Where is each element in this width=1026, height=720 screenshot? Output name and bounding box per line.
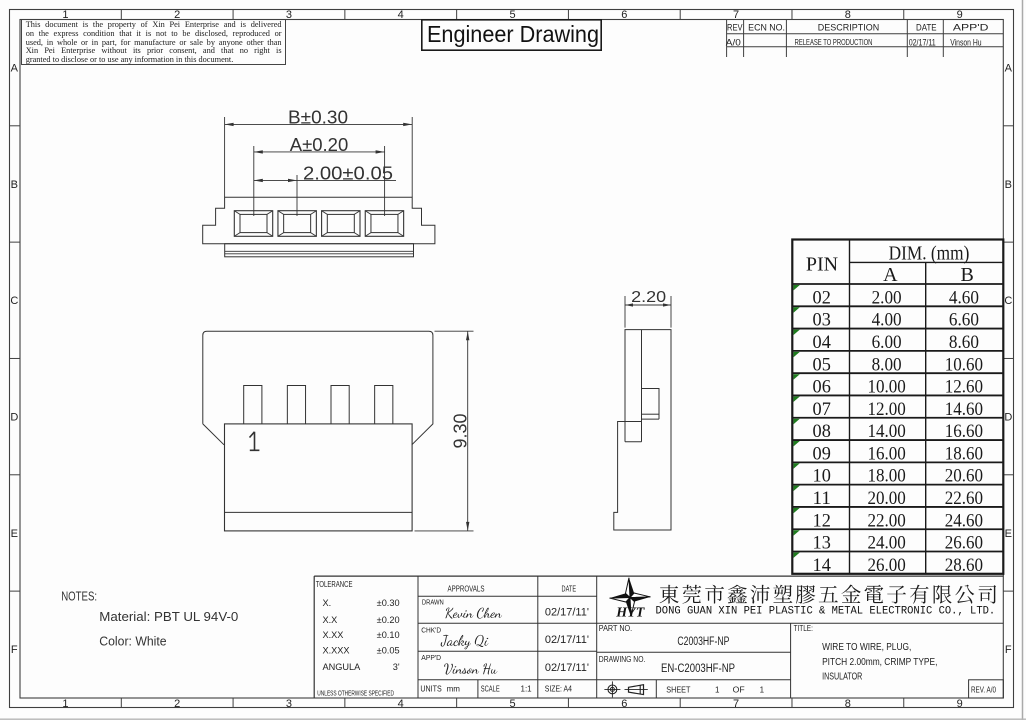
svg-text:Color: White: Color: White — [99, 634, 166, 649]
svg-text:28.60: 28.60 — [945, 555, 983, 576]
svg-text:03: 03 — [813, 310, 831, 331]
svg-text:NOTES:: NOTES: — [61, 590, 97, 604]
svg-text:9: 9 — [957, 9, 963, 21]
svg-text:14.60: 14.60 — [945, 399, 983, 420]
svg-text:C2003HF-NP: C2003HF-NP — [677, 636, 729, 648]
svg-text:1: 1 — [715, 685, 720, 694]
svg-text:INSULATOR: INSULATOR — [822, 671, 863, 682]
svg-text:18.00: 18.00 — [867, 466, 905, 487]
svg-text:1: 1 — [62, 9, 68, 21]
svg-text:SCALE: SCALE — [481, 684, 500, 693]
svg-text:13: 13 — [813, 533, 831, 554]
svg-text:B±0.30: B±0.30 — [288, 107, 348, 128]
svg-text:12: 12 — [813, 510, 831, 531]
svg-text:mm: mm — [447, 684, 461, 693]
svg-text:DIM. (mm): DIM. (mm) — [889, 244, 970, 265]
svg-text:F: F — [11, 644, 18, 656]
svg-text:10.00: 10.00 — [867, 377, 905, 398]
svg-text:24.60: 24.60 — [945, 510, 983, 531]
svg-text:4: 4 — [398, 698, 404, 710]
svg-text:±0.05: ±0.05 — [377, 646, 400, 656]
svg-text:1: 1 — [62, 698, 68, 710]
svg-text:1: 1 — [760, 685, 765, 694]
svg-text:±0.20: ±0.20 — [377, 615, 400, 625]
svg-text:C: C — [1004, 295, 1012, 307]
svg-text:6.00: 6.00 — [872, 332, 902, 353]
svg-text:2: 2 — [174, 9, 180, 21]
svg-text:3: 3 — [286, 698, 292, 710]
svg-text:20.00: 20.00 — [867, 488, 905, 509]
svg-text:8.00: 8.00 — [872, 354, 902, 375]
svg-text:12.60: 12.60 — [945, 377, 983, 398]
svg-text:26.00: 26.00 — [867, 555, 905, 576]
svg-text:X.X: X.X — [323, 615, 338, 625]
svg-text:C: C — [10, 295, 18, 307]
svg-text:1:1: 1:1 — [521, 684, 533, 693]
svg-text:24.00: 24.00 — [867, 533, 905, 554]
svg-text:10: 10 — [813, 466, 831, 487]
svg-text:±0.30: ±0.30 — [377, 598, 400, 608]
svg-text:PITCH 2.00mm, CRIMP TYPE,: PITCH 2.00mm, CRIMP TYPE, — [822, 657, 937, 668]
svg-text:DESCRIPTION: DESCRIPTION — [818, 23, 879, 33]
svg-text:TITLE:: TITLE: — [794, 624, 813, 633]
svg-text:10.60: 10.60 — [945, 354, 983, 375]
svg-text:X.XX: X.XX — [323, 630, 344, 640]
svg-text:2: 2 — [174, 698, 180, 710]
svg-text:26.60: 26.60 — [945, 533, 983, 554]
svg-text:PART NO.: PART NO. — [599, 624, 632, 633]
svg-text:REV: REV — [727, 23, 743, 33]
svg-text:DATE: DATE — [916, 23, 937, 33]
svg-text:EN-C2003HF-NP: EN-C2003HF-NP — [661, 663, 735, 675]
svg-text:2.20: 2.20 — [631, 289, 666, 306]
svg-text:X.: X. — [323, 598, 332, 608]
svg-text:UNITS: UNITS — [420, 684, 441, 693]
svg-text:18.60: 18.60 — [945, 443, 983, 464]
svg-text:3: 3 — [286, 9, 292, 21]
svg-text:E: E — [11, 528, 18, 540]
svg-text:PIN: PIN — [806, 254, 838, 276]
svg-text:2.00: 2.00 — [872, 287, 902, 308]
svg-text:3ʹ: 3ʹ — [393, 662, 400, 672]
svg-text:Engineer Drawing: Engineer Drawing — [427, 21, 599, 47]
svg-text:20.60: 20.60 — [945, 466, 983, 487]
svg-text:A: A — [1005, 63, 1013, 75]
svg-text:2.00±0.05: 2.00±0.05 — [303, 163, 393, 184]
svg-text:5: 5 — [509, 698, 515, 710]
svg-text:DRAWN: DRAWN — [422, 597, 444, 606]
svg-text:02/17/11: 02/17/11 — [909, 37, 936, 47]
svg-text:WIRE TO WIRE, PLUG,: WIRE TO WIRE, PLUG, — [822, 642, 911, 653]
svg-text:02/17/11': 02/17/11' — [545, 634, 589, 646]
svg-text:SHEET: SHEET — [666, 685, 690, 694]
svg-text:Material: PBT UL 94V-0: Material: PBT UL 94V-0 — [99, 609, 238, 624]
svg-text:02/17/11': 02/17/11' — [545, 607, 589, 619]
svg-text:A: A — [883, 264, 898, 286]
svg-text:APPROVALS: APPROVALS — [448, 585, 485, 594]
svg-text:B: B — [11, 179, 18, 191]
svg-text:11: 11 — [813, 488, 831, 509]
svg-text:02/17/11': 02/17/11' — [545, 662, 589, 674]
svg-text:12.00: 12.00 — [867, 399, 905, 420]
svg-text:05: 05 — [813, 354, 831, 375]
svg-text:Vinson Hu: Vinson Hu — [950, 37, 981, 47]
svg-text:02: 02 — [813, 287, 831, 308]
svg-text:ANGULA: ANGULA — [323, 662, 362, 672]
svg-text:22.00: 22.00 — [867, 510, 905, 531]
svg-text:REV. A/0: REV. A/0 — [971, 685, 996, 694]
svg-text:ECN NO.: ECN NO. — [748, 23, 785, 33]
svg-text:8: 8 — [845, 9, 851, 21]
svg-text:14.00: 14.00 — [867, 421, 905, 442]
svg-text:07: 07 — [813, 399, 831, 420]
svg-text:6.60: 6.60 — [949, 310, 979, 331]
svg-text:OF: OF — [733, 685, 745, 694]
svg-text:F: F — [1005, 644, 1012, 656]
svg-text:A/0: A/0 — [726, 37, 741, 47]
svg-text:09: 09 — [813, 443, 831, 464]
svg-text:D: D — [1004, 411, 1012, 423]
svg-text:08: 08 — [813, 421, 831, 442]
svg-text:8.60: 8.60 — [949, 332, 979, 353]
svg-text:CHK'D: CHK'D — [421, 625, 441, 634]
svg-text:DATE: DATE — [562, 585, 577, 594]
svg-text:APP'D: APP'D — [421, 653, 441, 662]
svg-text:16.00: 16.00 — [867, 443, 905, 464]
svg-text:HYT: HYT — [615, 606, 645, 621]
svg-text:B: B — [1005, 179, 1012, 191]
svg-text:16.60: 16.60 — [945, 421, 983, 442]
svg-text:06: 06 — [813, 377, 831, 398]
svg-text:D: D — [10, 411, 18, 423]
svg-text:8: 8 — [845, 698, 851, 710]
svg-text:4: 4 — [398, 9, 404, 21]
svg-text:A±0.20: A±0.20 — [290, 134, 349, 155]
svg-text:RELEASE TO PRODUCTION: RELEASE TO PRODUCTION — [795, 38, 873, 47]
svg-text:X.XXX: X.XXX — [323, 646, 350, 656]
svg-text:TOLERANCE: TOLERANCE — [316, 580, 353, 589]
svg-text:04: 04 — [813, 332, 832, 353]
svg-text:4.00: 4.00 — [872, 310, 902, 331]
svg-text:6: 6 — [621, 698, 627, 710]
svg-text:DONG GUAN XIN PEI PLASTIC & ME: DONG GUAN XIN PEI PLASTIC & METAL ELECTR… — [656, 606, 996, 618]
svg-text:E: E — [1005, 528, 1012, 540]
svg-text:7: 7 — [733, 9, 739, 21]
svg-text:6: 6 — [621, 9, 627, 21]
svg-text:22.60: 22.60 — [945, 488, 983, 509]
svg-text:A: A — [11, 63, 19, 75]
svg-text:SIZE: A4: SIZE: A4 — [545, 684, 573, 693]
svg-text:7: 7 — [733, 698, 739, 710]
svg-text:APP'D: APP'D — [953, 23, 989, 33]
svg-text:±0.10: ±0.10 — [377, 630, 400, 640]
svg-text:4.60: 4.60 — [949, 287, 979, 308]
svg-text:9.30: 9.30 — [451, 414, 471, 449]
svg-text:B: B — [961, 264, 974, 286]
svg-text:UNLESS OTHERWISE SPECIFIED: UNLESS OTHERWISE SPECIFIED — [317, 690, 394, 697]
svg-text:DRAWING NO.: DRAWING NO. — [599, 655, 646, 664]
svg-text:14: 14 — [813, 555, 832, 576]
svg-text:9: 9 — [957, 698, 963, 710]
